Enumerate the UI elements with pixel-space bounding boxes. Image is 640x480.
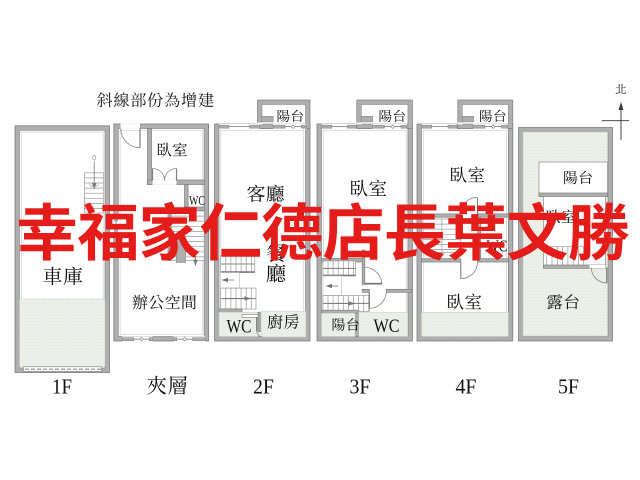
svg-text:WC: WC xyxy=(374,316,400,337)
svg-text:4F: 4F xyxy=(456,375,477,399)
svg-text:WC: WC xyxy=(227,317,252,338)
svg-text:3F: 3F xyxy=(350,375,371,399)
svg-text:5F: 5F xyxy=(558,375,579,399)
svg-text:1F: 1F xyxy=(52,375,72,399)
svg-text:WC: WC xyxy=(189,194,205,209)
svg-text:2F: 2F xyxy=(253,375,274,399)
